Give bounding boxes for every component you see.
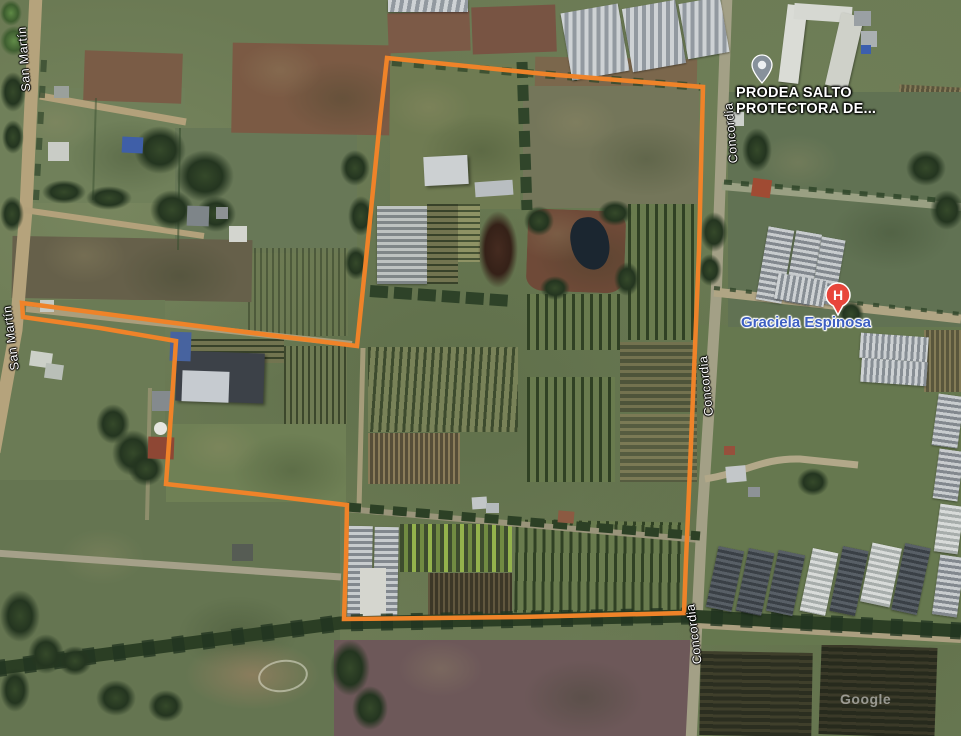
poi-label-prodea-line1: PRODEA SALTO — [736, 85, 876, 101]
place-pin-icon — [751, 54, 773, 84]
poi-label-prodea-line2: PROTECTORA DE... — [736, 101, 876, 117]
property-boundary — [22, 58, 703, 619]
place-pin[interactable] — [751, 54, 773, 89]
map-attribution: Google — [840, 691, 891, 707]
svg-text:H: H — [833, 287, 843, 303]
poi-label-graciela[interactable]: Graciela Espinosa — [716, 314, 896, 331]
satellite-map[interactable]: H San Martín San Martín Concordia Concor… — [0, 0, 961, 736]
poi-label-prodea[interactable]: PRODEA SALTO PROTECTORA DE... — [736, 85, 876, 117]
hospital-pin-icon: H — [825, 282, 851, 316]
